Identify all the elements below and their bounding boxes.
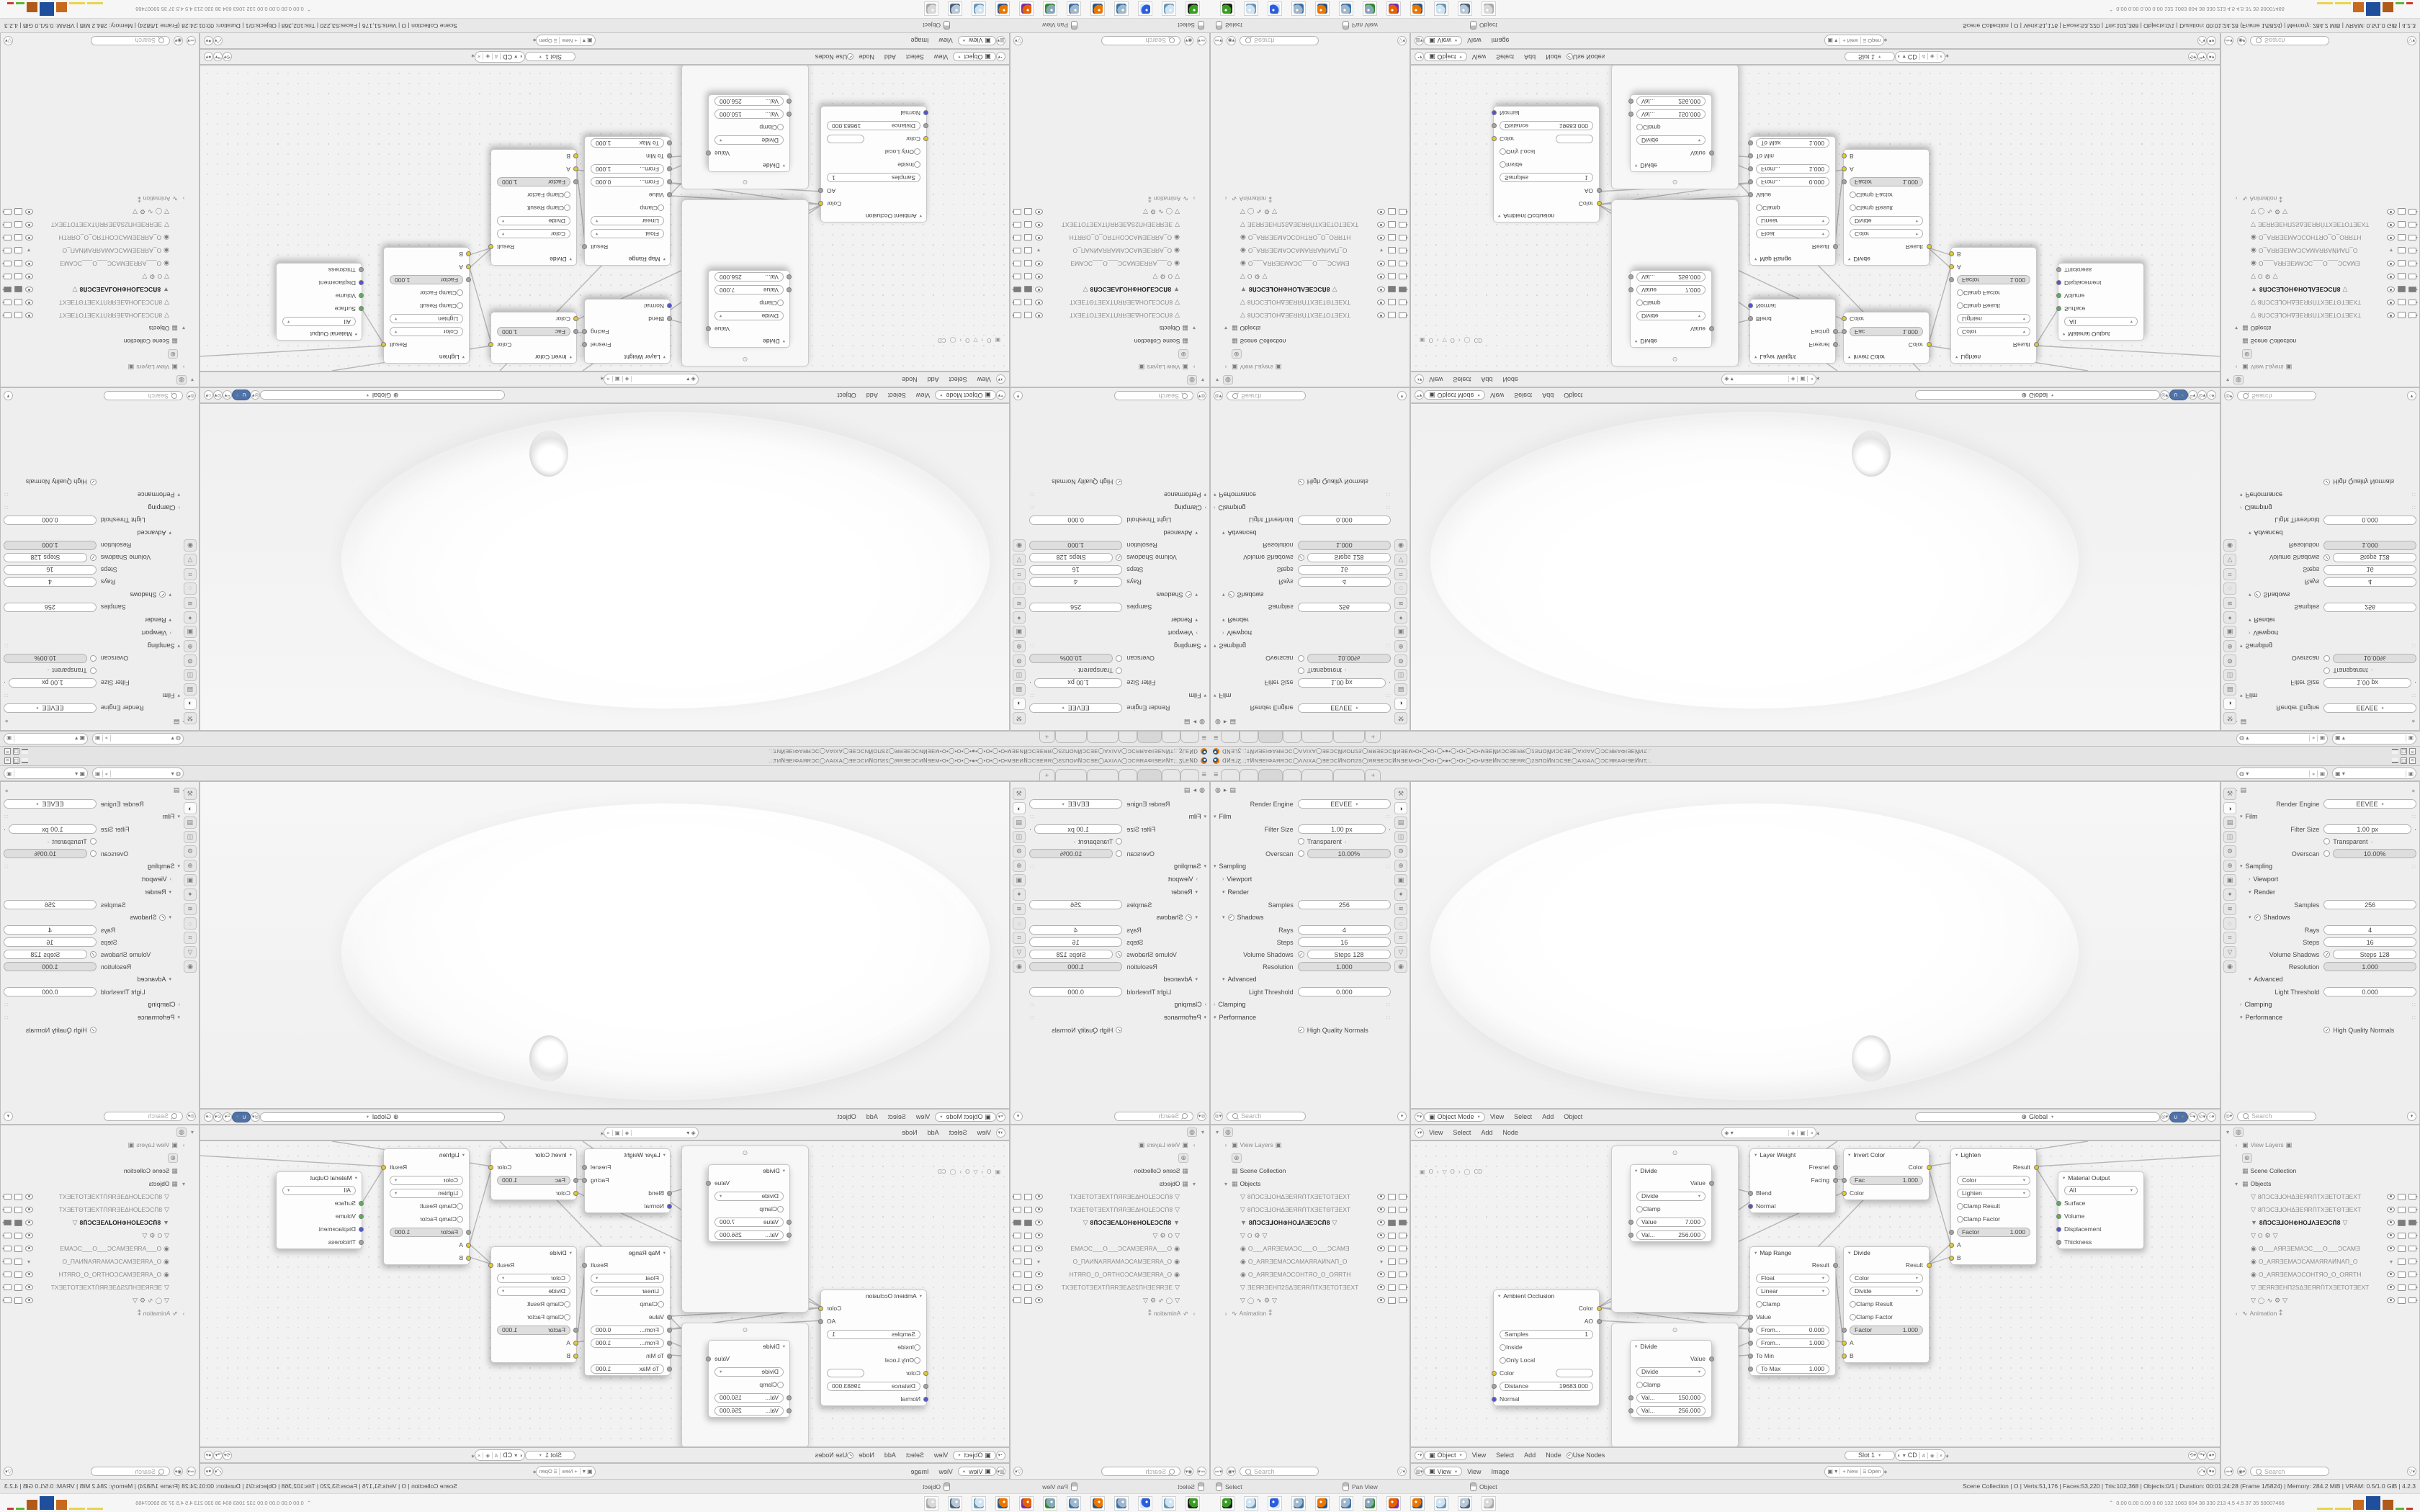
node-menu-add[interactable]: Add	[928, 376, 939, 383]
node-value-field[interactable]: Factor1.000	[1850, 1326, 1923, 1335]
minimize-button[interactable]	[2392, 758, 2398, 763]
cam-toggle-icon[interactable]	[4, 248, 12, 253]
section-sampling[interactable]: ▾Sampling∷	[1214, 860, 1391, 873]
node-math-divide-b[interactable]: ▾DivideValueDivide▾ ClampVal...150.000Va…	[708, 1340, 790, 1418]
prop-checkbox[interactable]: ✓	[1116, 479, 1122, 485]
menu-view[interactable]: View	[1490, 392, 1504, 399]
screen-toggle-icon[interactable]	[1388, 235, 1396, 241]
outliner-search-input[interactable]: Search	[1101, 1467, 1180, 1476]
properties-tab-icon-2[interactable]: ▤	[1394, 816, 1407, 829]
outliner-row-6[interactable]: ▽8ՈƆCƎ⅃OHΔƎEЯRՈTXƎETΘTƎEXT	[2221, 296, 2419, 309]
outliner-row-9[interactable]: ◉O___AЯRƎEMAƆC___O___ƆCAMƎ	[1, 257, 199, 270]
viewport-3d[interactable]	[1410, 781, 2220, 1109]
outliner-row-14[interactable]: ›∿Animation⁑	[1, 192, 199, 205]
input-socket[interactable]	[1949, 1243, 1954, 1248]
menu-view[interactable]: View	[916, 392, 930, 399]
cam-toggle-icon[interactable]	[1399, 1207, 1407, 1212]
outliner-row-4[interactable]: ▾▦Objects	[1, 1177, 199, 1190]
cam-toggle-icon[interactable]	[1013, 1207, 1021, 1212]
properties-tab-icon-8[interactable]: ≋	[184, 597, 197, 609]
node-row-all[interactable]: All▾	[277, 315, 362, 328]
section-performance[interactable]: ▾Performance∷	[2240, 1011, 2416, 1024]
section-sampling[interactable]: ▾Sampling∷	[2240, 860, 2416, 873]
prop-checkbox[interactable]: ✓	[2323, 479, 2330, 485]
outliner-search-input[interactable]: Search	[1101, 36, 1180, 45]
node-value-field[interactable]: From...1.000	[591, 165, 664, 174]
screen-toggle-icon[interactable]	[1024, 312, 1032, 319]
input-socket[interactable]	[1842, 1354, 1847, 1359]
scanner-app-icon[interactable]	[1186, 1496, 1200, 1511]
node-row-clamp-result[interactable]: Clamp Result	[491, 202, 576, 215]
section-film[interactable]: ▾Film∷	[1214, 810, 1391, 823]
node-checkbox[interactable]	[1500, 149, 1506, 156]
workspace-tab-4[interactable]	[1119, 769, 1137, 780]
node-invert-color[interactable]: ▾Invert ColorColorFac1.000Color	[1843, 1148, 1930, 1200]
properties-tab-icon-3[interactable]: ◫	[1013, 831, 1026, 843]
properties-tab-icon-0[interactable]: ⚒	[2223, 712, 2236, 724]
gimp-app-icon[interactable]	[924, 1, 938, 16]
node-menu-view[interactable]: View	[1472, 53, 1486, 60]
screen-toggle-icon[interactable]	[14, 222, 22, 228]
cam-toggle-icon[interactable]	[1013, 1259, 1021, 1264]
section-viewport[interactable]: ›Viewport	[4, 873, 180, 886]
prop-field[interactable]: 1.00 px	[1034, 678, 1122, 688]
shadows-checkbox[interactable]: ✓	[1228, 914, 1234, 921]
outliner-row-11[interactable]: ◉O_AЯRƎEMAƆCOHTЯO_O_OЯRTH	[1, 231, 199, 244]
calculator-app-icon[interactable]	[1114, 1, 1129, 16]
section-render[interactable]: ▾Render	[4, 613, 180, 626]
image-header-right-icon-0[interactable]: ⤢▾	[213, 36, 223, 45]
output-socket[interactable]	[1833, 1165, 1838, 1170]
outliner-row-4[interactable]: ▾▦Objects	[1010, 322, 1209, 335]
node-row-clamp-factor[interactable]: Clamp Factor	[1951, 287, 2036, 300]
section-advanced[interactable]: ▾Advanced	[1029, 526, 1206, 539]
screen-toggle-icon[interactable]	[2398, 222, 2406, 228]
screen-toggle-icon[interactable]	[1388, 248, 1396, 254]
pin-icon[interactable]: ⁎	[1816, 376, 1820, 384]
node-mix-divide[interactable]: ▾DivideResultColor▾Divide▾ Clamp Result …	[1843, 149, 1930, 266]
eye-toggle-icon[interactable]	[1377, 235, 1385, 240]
outliner-row-7[interactable]: ▼8ՈƆCƎ⅃OH⊕HO⅃ΛƎEƆCՈ8▽	[1010, 1216, 1209, 1229]
material-button-1[interactable]: ×	[1937, 1452, 1942, 1459]
node-row-color[interactable]: Color▾	[384, 325, 469, 338]
section-shadows[interactable]: ▾✓Shadows	[4, 588, 180, 601]
prop-checkbox[interactable]	[2323, 838, 2330, 845]
section-clamping[interactable]: ›Clamping∷	[1214, 998, 1391, 1011]
snap-toggle[interactable]: ∪▾	[2169, 1112, 2188, 1122]
material-slot-select[interactable]: Slot 1▾	[525, 53, 575, 62]
properties-tab-icon-3[interactable]: ◫	[2223, 669, 2236, 681]
prop-field[interactable]: 0.000	[1029, 987, 1122, 996]
cam-toggle-icon[interactable]	[1013, 1194, 1021, 1200]
eye-toggle-icon[interactable]	[1377, 274, 1385, 279]
prop-checkbox[interactable]: ✓	[1298, 479, 1304, 485]
prop-checkbox[interactable]	[1116, 838, 1122, 845]
cam-toggle-icon[interactable]	[1399, 209, 1407, 215]
menu-object[interactable]: Object	[1564, 1113, 1582, 1120]
outliner-row-1[interactable]: ›▣View Layers▣	[2221, 361, 2419, 374]
section-render[interactable]: ▾Render	[1214, 613, 1391, 626]
scene-selector[interactable]: ◍ ▾ ⁎ ▣	[2236, 733, 2328, 744]
screen-toggle-icon[interactable]	[14, 261, 22, 267]
node-row-clamp-factor[interactable]: Clamp Factor	[384, 1212, 469, 1225]
node-header[interactable]: ▾Divide	[1631, 160, 1711, 171]
properties-options-button[interactable]: ▾	[1397, 1112, 1407, 1121]
node-checkbox[interactable]	[1500, 162, 1506, 168]
node-row-fac[interactable]: Fac1.000	[1844, 325, 1929, 338]
properties-tab-icon-6[interactable]: ▣	[1394, 626, 1407, 638]
node-header-right-icon-2[interactable]: ●▾	[204, 1451, 213, 1460]
eye-toggle-icon[interactable]	[25, 287, 33, 292]
cam-toggle-icon[interactable]	[4, 312, 12, 318]
properties-tab-icon-7[interactable]: ✦	[1394, 611, 1407, 624]
outliner-row-1[interactable]: ›▣View Layers▣	[1211, 361, 1410, 374]
menu-hamburger-icon[interactable]: ≡	[1214, 770, 1218, 779]
outliner-row-6[interactable]: ▽8ՈƆCƎ⅃OHΔƎEЯRՈTXƎETΘTƎEXT	[1211, 296, 1410, 309]
expand-icon[interactable]: ›	[2233, 364, 2240, 371]
output-socket[interactable]	[583, 1178, 588, 1183]
node-row-val-[interactable]: Val...256.000	[1631, 1228, 1711, 1241]
cam-toggle-icon[interactable]	[1013, 1284, 1021, 1290]
outliner-row-8[interactable]: ▽O⚙▽	[1, 270, 199, 283]
outliner-row-14[interactable]: ›∿Animation⁑	[2221, 192, 2419, 205]
pin-icon[interactable]: ⁎	[471, 53, 475, 61]
color-swatch-field[interactable]	[827, 1369, 864, 1377]
properties-tab-icon-12[interactable]: ◉	[184, 960, 197, 973]
menu-add[interactable]: Add	[866, 392, 878, 399]
properties-filter-button[interactable]: ◎▾	[1214, 1112, 1223, 1121]
prop-field[interactable]: 1.00 px	[9, 678, 97, 688]
output-socket[interactable]	[583, 1263, 588, 1268]
outliner-search-input[interactable]: Search	[1240, 1467, 1319, 1476]
viewlayer-copy-icon[interactable]: ▣	[6, 770, 14, 777]
section-performance[interactable]: ▾Performance∷	[1214, 488, 1391, 501]
properties-search-input[interactable]: Search	[1227, 392, 1306, 401]
properties-tab-icon-4[interactable]: ⚙	[2223, 654, 2236, 667]
node-value-field[interactable]: Val...256.000	[1636, 273, 1706, 282]
node-header[interactable]: ▾Divide	[709, 1165, 789, 1176]
use-nodes-checkbox[interactable]: ✓	[1567, 54, 1573, 60]
expand-icon[interactable]: ›	[2233, 1142, 2240, 1148]
chevron-down-icon[interactable]: ▾	[1035, 1259, 1042, 1265]
node-dropdown[interactable]: Color▾	[1850, 230, 1923, 239]
material-name-field[interactable]	[1736, 376, 1786, 383]
cam-toggle-icon[interactable]	[2408, 1220, 2416, 1225]
outliner-row-4[interactable]: ▾▦Objects	[2221, 1177, 2419, 1190]
node-dropdown[interactable]: Color▾	[1957, 328, 2030, 337]
add-workspace-tab[interactable]: +	[1365, 732, 1381, 743]
eye-toggle-icon[interactable]	[2387, 312, 2395, 318]
screen-toggle-icon[interactable]	[14, 1207, 22, 1213]
outliner-row-0[interactable]: ▾◍	[1211, 374, 1410, 387]
section-performance[interactable]: ▾Performance∷	[1029, 488, 1206, 501]
node-row-color[interactable]: Color▾	[1844, 228, 1929, 240]
floppy-save-icon[interactable]	[1268, 1496, 1282, 1511]
cam-toggle-icon[interactable]	[4, 1297, 12, 1303]
viewport-editor-type-button[interactable]: ⌖▾	[1415, 1112, 1424, 1122]
output-socket[interactable]	[583, 1165, 588, 1170]
outliner-row-8[interactable]: ▽O⚙▽	[2221, 1229, 2419, 1242]
pin-icon[interactable]: ⁎	[1816, 1129, 1820, 1137]
scanner-app-icon[interactable]	[1220, 1496, 1234, 1511]
node-row-clamp-factor[interactable]: Clamp Factor	[384, 287, 469, 300]
maximize-button[interactable]: ❏	[13, 757, 19, 764]
prop-checkbox[interactable]: ✓	[90, 479, 97, 485]
eye-toggle-icon[interactable]	[1035, 300, 1043, 305]
outliner-filter-button-0[interactable]: ≔▾	[1197, 1467, 1206, 1476]
node-checkbox[interactable]	[777, 300, 784, 307]
node-row-divide[interactable]: Divide▾	[709, 134, 789, 147]
properties-filter-button[interactable]: ◎▾	[187, 1112, 196, 1121]
properties-tab-icon-9[interactable]: ◌	[184, 917, 197, 930]
node-row-from-[interactable]: From...1.000	[585, 1336, 670, 1349]
node-row-divide[interactable]: Divide▾	[709, 1365, 789, 1378]
node-menu-view[interactable]: View	[1429, 376, 1443, 383]
screen-toggle-icon[interactable]	[1024, 261, 1032, 267]
screen-toggle-icon[interactable]	[2398, 235, 2406, 241]
overscan-toggle[interactable]	[1116, 850, 1122, 857]
properties-filter-button[interactable]: ◎▾	[1214, 392, 1223, 401]
image-menu-image[interactable]: Image	[1492, 37, 1510, 45]
node-checkbox[interactable]	[1500, 1344, 1506, 1351]
prop-field[interactable]: 0.000	[4, 987, 97, 996]
node-header[interactable]: ▾Layer Weight	[585, 351, 670, 363]
display-settings-icon[interactable]	[1043, 1496, 1057, 1511]
node-checkbox[interactable]	[1636, 1382, 1643, 1388]
image-view-select[interactable]: ▣View▾	[1424, 1467, 1462, 1476]
outliner-filter-button-0[interactable]: ≔▾	[2224, 1467, 2233, 1476]
section-render[interactable]: ▾Render	[1029, 613, 1206, 626]
calculator2-app-icon[interactable]	[1339, 1496, 1353, 1511]
floppy-save-icon[interactable]	[1268, 1, 1282, 16]
blender2-app-icon[interactable]	[1410, 1, 1425, 16]
node-header[interactable]: ▾Ambient Occlusion	[1494, 210, 1599, 222]
overscan-toggle[interactable]	[2323, 850, 2330, 857]
window-titlebar[interactable]: ᗡͶƎ⅃Ƹ.:;TͶNƎEIΦAЯRƆC◯ΛΛIXA◯ƎEƆCͶNOΠ2S◯ЯR…	[0, 756, 1210, 766]
node-value-field[interactable]: Factor1.000	[1850, 178, 1923, 187]
id-button-2[interactable]: ×	[606, 1130, 612, 1136]
node-value-field[interactable]: Value7.000	[1636, 1218, 1706, 1227]
node-menu-select[interactable]: Select	[1453, 1129, 1471, 1136]
node-row-factor[interactable]: Factor1.000	[491, 176, 576, 189]
outliner-row-9[interactable]: ◉O___AЯRƎEMAƆC___O___ƆCAMƎ	[1211, 257, 1410, 270]
node-value-field[interactable]: Samples1	[1500, 174, 1593, 183]
chevron-down-icon[interactable]: ▾	[2388, 1259, 2395, 1265]
node-row-clamp[interactable]: Clamp	[1631, 297, 1711, 310]
node-row-fac[interactable]: Fac1.000	[1844, 1174, 1929, 1187]
add-workspace-tab[interactable]: +	[1039, 769, 1055, 780]
output-socket[interactable]	[707, 327, 712, 332]
properties-options-button[interactable]: ▾	[2407, 392, 2416, 401]
node-dropdown[interactable]: Lighten▾	[390, 1189, 463, 1198]
scanner-app-icon[interactable]	[1220, 1, 1234, 16]
outliner-row-6[interactable]: ▽8ՈƆCƎ⅃OHΔƎEЯRՈTXƎETΘTƎEXT	[1, 1203, 199, 1216]
prop-field[interactable]: 1.00 px	[2323, 824, 2411, 834]
outliner-row-14[interactable]: ›∿Animation⁑	[1211, 192, 1410, 205]
node-row-from-[interactable]: From...1.000	[585, 163, 670, 176]
outliner-search-input[interactable]: Search	[91, 36, 170, 45]
node-dropdown[interactable]: Divide▾	[497, 1287, 570, 1296]
screen-toggle-icon[interactable]	[2398, 1284, 2406, 1291]
node-header[interactable]: ▾Map Range	[585, 253, 670, 265]
notepad-app-icon[interactable]	[1244, 1496, 1258, 1511]
id-button-0[interactable]: ◈	[1788, 1130, 1796, 1136]
prop-field[interactable]: 256	[2323, 900, 2416, 909]
node-row-divide[interactable]: Divide▾	[1844, 1284, 1929, 1297]
node-header[interactable]: ▾Divide	[1844, 1247, 1929, 1259]
output-socket[interactable]	[819, 189, 824, 194]
pin-icon[interactable]: ⁎	[1945, 1452, 1949, 1459]
node-material-output[interactable]: ▾Material OutputAll▾SurfaceVolumeDisplac…	[276, 1171, 362, 1249]
properties-tab-icon-4[interactable]: ⚙	[2223, 845, 2236, 858]
volume-shadows-toggle[interactable]: ✓	[1116, 951, 1122, 958]
material-button-0[interactable]: ◈	[1927, 54, 1935, 60]
properties-tab-icon-6[interactable]: ▣	[2223, 874, 2236, 886]
screen-toggle-icon[interactable]	[1388, 1207, 1396, 1213]
shadows-checkbox[interactable]: ✓	[1186, 914, 1192, 921]
properties-tab-icon-2[interactable]: ▤	[2223, 683, 2236, 696]
screen-toggle-icon[interactable]	[1024, 274, 1032, 280]
outliner-row-4[interactable]: ▾▦Objects	[1, 322, 199, 335]
node-value-field[interactable]: Val...150.000	[1636, 1393, 1706, 1403]
node-menu-add[interactable]: Add	[1524, 1452, 1536, 1459]
menu-object[interactable]: Object	[1564, 392, 1582, 399]
node-menu-add[interactable]: Add	[1481, 1129, 1492, 1136]
prop-field[interactable]: 1.000	[1029, 962, 1122, 971]
material-id-group[interactable]: ◐ ▾CD4◈×	[475, 51, 525, 63]
outliner-row-13[interactable]: ▽◯∿⚙▽	[1211, 1294, 1410, 1307]
node-menu-select[interactable]: Select	[949, 1129, 967, 1136]
prop-field[interactable]: 4	[2323, 577, 2416, 587]
output-socket[interactable]	[1709, 1181, 1714, 1186]
input-socket[interactable]	[1748, 1328, 1753, 1333]
outliner-filter-button-1[interactable]: ◉▾	[1227, 1467, 1236, 1476]
calculator-app-icon[interactable]	[1114, 1496, 1129, 1511]
node-menu-view[interactable]: View	[934, 53, 948, 60]
cam-toggle-icon[interactable]	[1399, 248, 1407, 253]
screen-toggle-icon[interactable]	[1388, 312, 1396, 319]
viewport-3d[interactable]	[200, 403, 1010, 731]
cam-toggle-icon[interactable]	[2408, 209, 2416, 215]
outliner-row-12[interactable]: ▽ƎEЯRƎEHΠ2SΔƎEЯRՈTXƎETOTƎEXT	[2221, 1281, 2419, 1294]
node-dropdown[interactable]: Divide▾	[1850, 217, 1923, 226]
node-row-val-[interactable]: Val...256.000	[709, 95, 789, 108]
notepad2-app-icon[interactable]	[972, 1, 986, 16]
node-header[interactable]: ▾Divide	[709, 160, 789, 171]
image-menu-image[interactable]: Image	[910, 37, 928, 45]
node-value-field[interactable]: Val...256.000	[714, 1230, 784, 1240]
prop-field[interactable]: 1.000	[1298, 541, 1391, 550]
use-nodes-checkbox[interactable]: ✓	[847, 1452, 853, 1459]
outliner-row-2[interactable]: ⊕	[1211, 348, 1410, 361]
node-row-lighten[interactable]: Lighten▾	[384, 1187, 469, 1200]
node-menu-add[interactable]: Add	[1524, 53, 1536, 60]
window-titlebar[interactable]: ᗡͶƎ⅃Ƹ.:;TͶNƎEIΦAЯRƆC◯ΛΛIXA◯ƎEƆCͶNOΠ2S◯ЯR…	[1210, 756, 2420, 766]
node-math-divide-a[interactable]: ▾DivideValueDivide▾ ClampValue7.000Val..…	[708, 270, 790, 348]
outliner-filter-button-1[interactable]: ◉▾	[1184, 1467, 1193, 1476]
node-row-factor[interactable]: Factor1.000	[384, 274, 469, 287]
node-checkbox[interactable]	[1850, 1314, 1856, 1320]
screen-toggle-icon[interactable]	[1024, 1233, 1032, 1239]
properties-tab-icon-0[interactable]: ⚒	[1013, 788, 1026, 800]
shader-context-select[interactable]: ▣Object▾	[1424, 1451, 1467, 1460]
node-checkbox[interactable]	[1850, 205, 1856, 212]
volume-shadows-toggle[interactable]: ✓	[90, 554, 97, 561]
section-film[interactable]: ▾Film∷	[2240, 810, 2416, 823]
eye-toggle-icon[interactable]	[25, 1194, 33, 1200]
section-viewport[interactable]: ›Viewport	[4, 626, 180, 639]
input-socket[interactable]	[1748, 1315, 1753, 1320]
properties-tab-icon-12[interactable]: ◉	[184, 539, 197, 552]
eye-toggle-icon[interactable]	[1035, 1297, 1043, 1303]
eye-toggle-icon[interactable]	[1377, 312, 1385, 318]
eye-toggle-icon[interactable]	[1035, 1207, 1043, 1212]
node-row-val-[interactable]: Val...150.000	[709, 108, 789, 121]
node-id-field-group[interactable]: ◈ ▾◈▣×	[604, 374, 699, 385]
eye-toggle-icon[interactable]	[1035, 1233, 1043, 1238]
cam-toggle-icon[interactable]	[1013, 1272, 1021, 1277]
screen-toggle-icon[interactable]	[14, 1297, 22, 1304]
prop-field[interactable]: 4	[4, 577, 97, 587]
node-math-divide-b[interactable]: ▾DivideValueDivide▾ ClampVal...150.000Va…	[1630, 1340, 1712, 1418]
node-row-clamp-result[interactable]: Clamp Result	[1951, 300, 2036, 312]
node-ambient-occlusion[interactable]: ▾Ambient OcclusionColorAOSamples1 Inside…	[820, 106, 927, 222]
properties-tab-icon-12[interactable]: ◉	[1394, 960, 1407, 973]
outliner-row-8[interactable]: ▽O⚙▽	[2221, 270, 2419, 283]
prop-field[interactable]: 4	[1298, 925, 1391, 935]
properties-tab-icon-10[interactable]: ⌗	[1013, 568, 1026, 580]
prop-field[interactable]: 1.000	[1298, 962, 1391, 971]
node-menu-view[interactable]: View	[1429, 1129, 1443, 1136]
node-menu-add[interactable]: Add	[928, 1129, 939, 1136]
node-math-divide-b[interactable]: ▾DivideValueDivide▾ ClampVal...150.000Va…	[1630, 94, 1712, 172]
image-editor-type-button[interactable]: ▥▾	[996, 1467, 1005, 1476]
outliner-funnel-button[interactable]: ▽▾	[4, 36, 13, 45]
outliner-row-11[interactable]: ◉O_AЯRƎEMAƆCOHTЯO_O_OЯRTH	[2221, 231, 2419, 244]
display-settings-icon[interactable]	[1363, 1496, 1377, 1511]
properties-tab-icon-2[interactable]: ▤	[1394, 683, 1407, 696]
node-dropdown[interactable]: Float▾	[1756, 230, 1829, 239]
screen-toggle-icon[interactable]	[14, 1259, 22, 1265]
node-row-factor[interactable]: Factor1.000	[1951, 274, 2036, 287]
outliner-row-1[interactable]: ›▣View Layers▣	[2221, 1138, 2419, 1151]
node-menu-node[interactable]: Node	[1502, 376, 1518, 383]
node-lighten[interactable]: ▾LightenResultColor▾Lighten▾ Clamp Resul…	[1950, 1148, 2037, 1265]
screen-toggle-icon[interactable]	[14, 1246, 22, 1252]
node-checkbox[interactable]	[658, 205, 664, 212]
node-row-samples[interactable]: Samples1	[1494, 171, 1599, 184]
overscan-field[interactable]: 10.00%	[1029, 654, 1113, 663]
output-socket[interactable]	[583, 330, 588, 335]
node-map-range[interactable]: ▾Map RangeResultFloat▾Linear▾ ClampValue…	[1749, 1246, 1836, 1376]
node-row-clamp-result[interactable]: Clamp Result	[491, 1297, 576, 1310]
node-value-field[interactable]: From...0.000	[1756, 178, 1829, 187]
node-menu-add[interactable]: Add	[884, 1452, 896, 1459]
outliner-row-1[interactable]: ›▣View Layers▣	[1010, 361, 1209, 374]
screen-toggle-icon[interactable]	[1024, 1297, 1032, 1304]
properties-tab-icon-10[interactable]: ⌗	[1013, 932, 1026, 944]
section-film[interactable]: ▾Film∷	[1029, 810, 1206, 823]
outliner-row-13[interactable]: ▽◯∿⚙▽	[2221, 205, 2419, 218]
eye-toggle-icon[interactable]	[1035, 1194, 1043, 1200]
node-row-clamp[interactable]: Clamp	[585, 1297, 670, 1310]
node-header[interactable]: ▾Invert Color	[491, 351, 576, 363]
section-sampling[interactable]: ▾Sampling∷	[1214, 639, 1391, 652]
prop-field[interactable]: 0.000	[2323, 516, 2416, 525]
screen-toggle-icon[interactable]	[2398, 300, 2406, 306]
node-header[interactable]: ▾Layer Weight	[585, 1149, 670, 1161]
node-menu-select[interactable]: Select	[906, 1452, 924, 1459]
